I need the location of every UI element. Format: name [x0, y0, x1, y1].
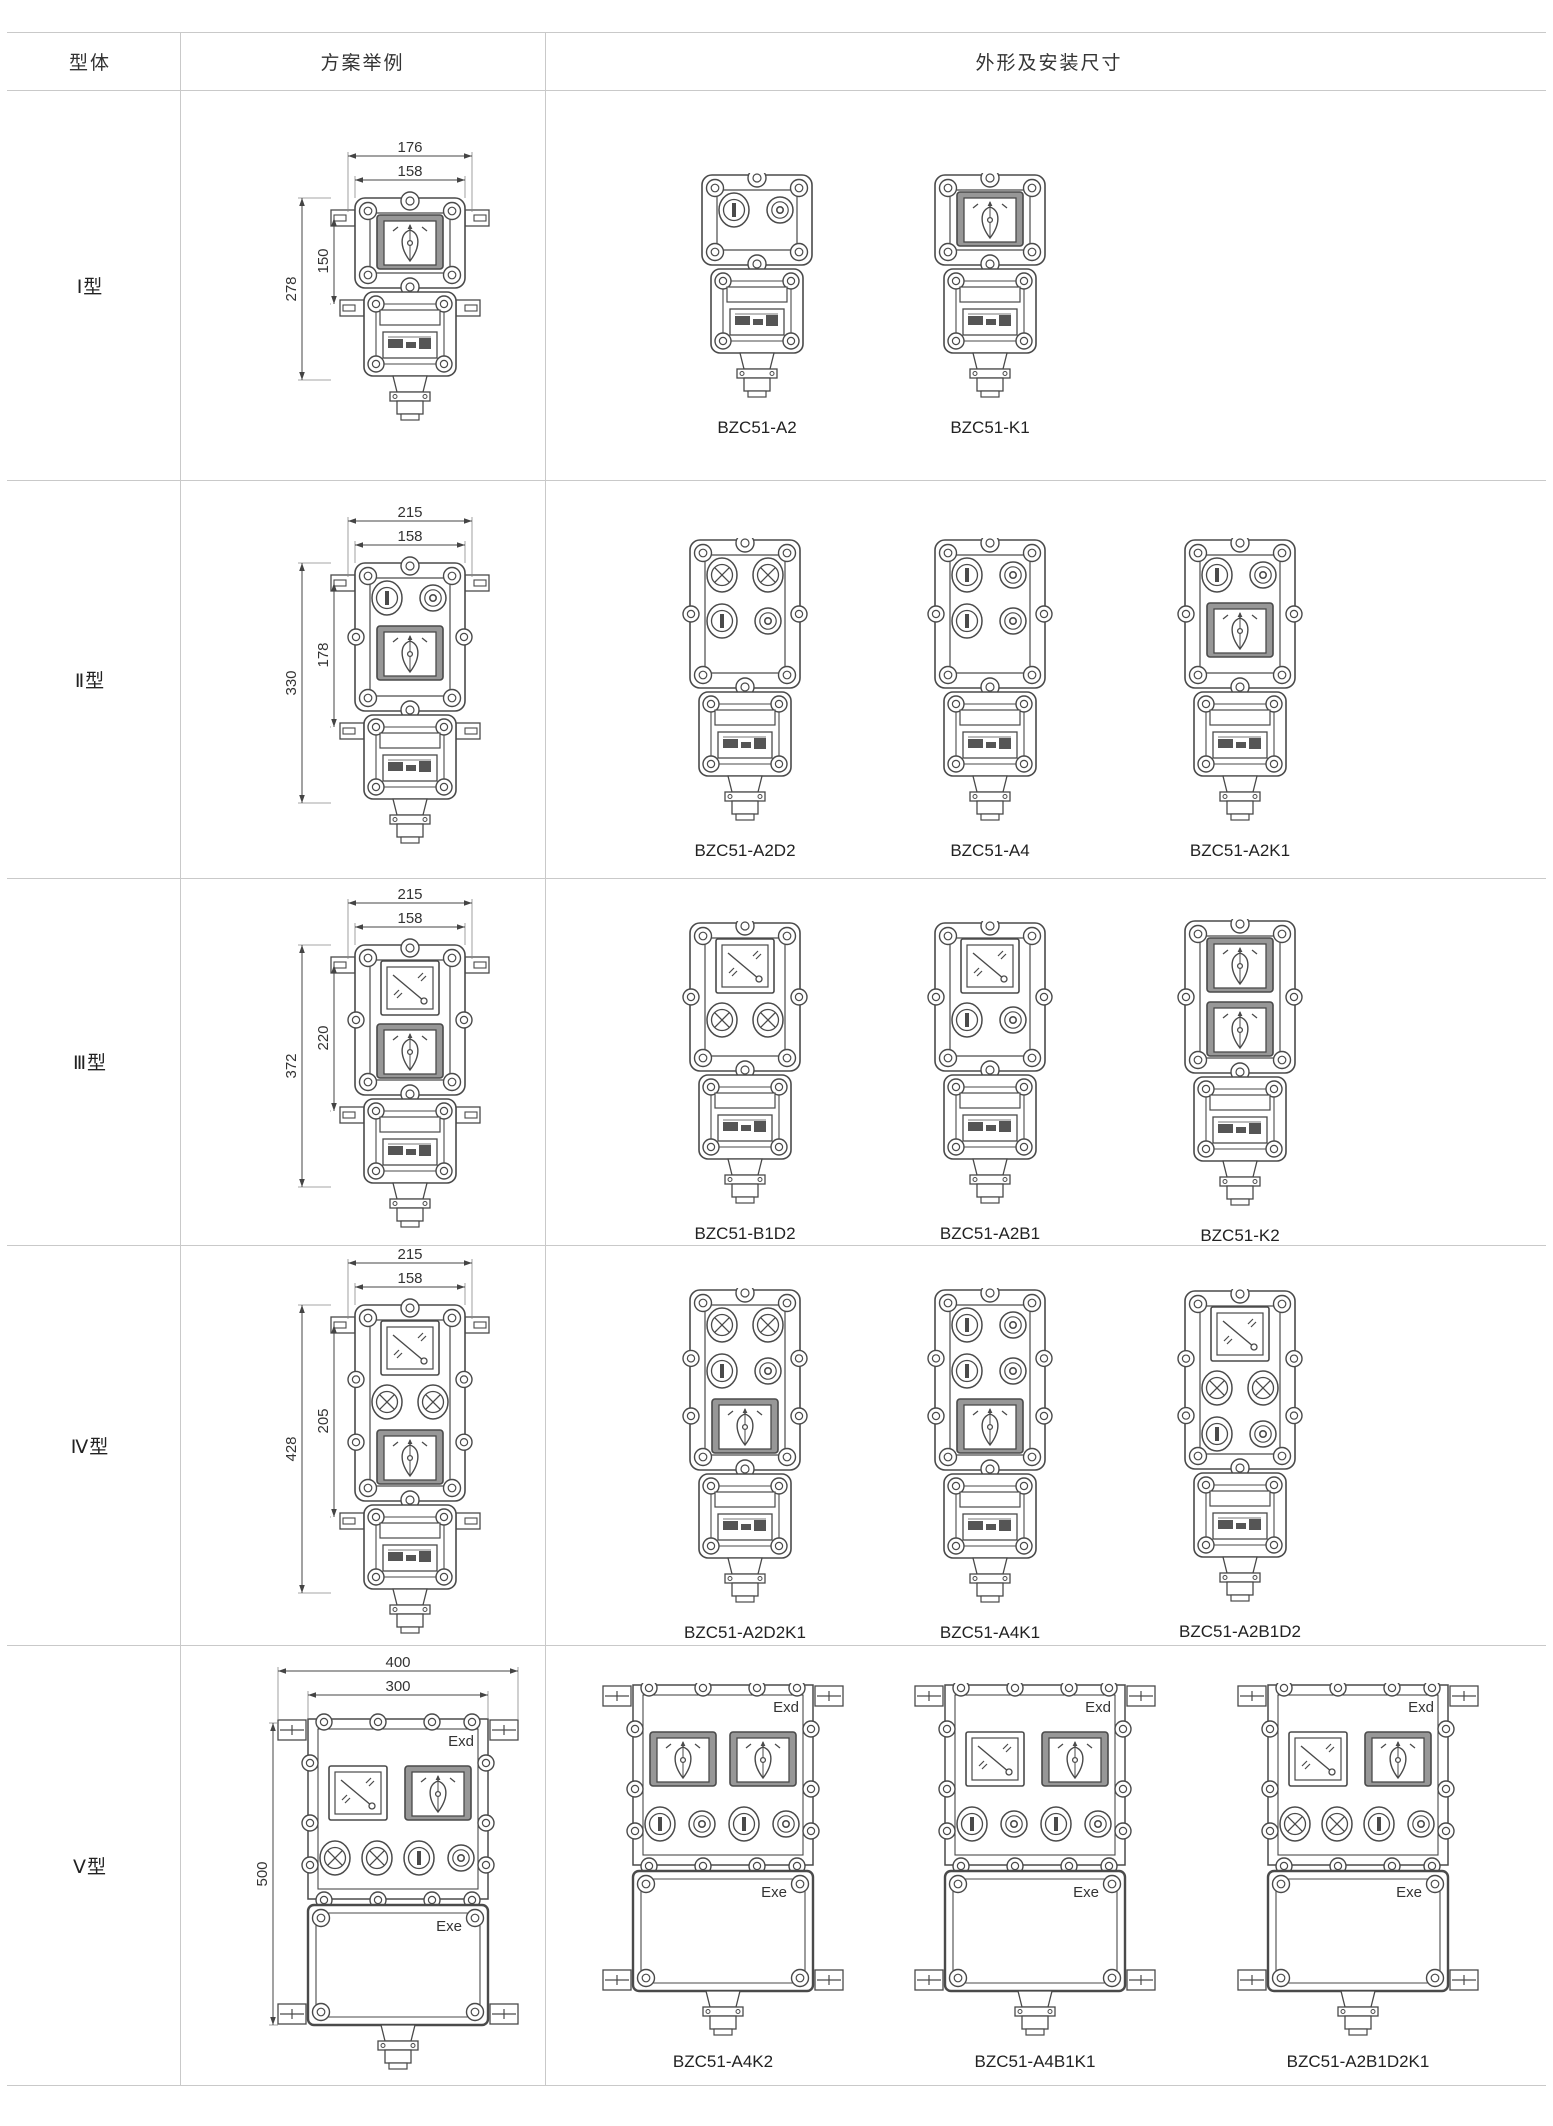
svg-text:220: 220	[315, 1025, 332, 1050]
model-label: BZC51-A2D2K1	[684, 1623, 806, 1643]
svg-text:500: 500	[254, 1861, 271, 1886]
header-scheme-example: 方案举例	[180, 32, 545, 90]
device-drawing	[905, 1288, 1075, 1610]
svg-text:400: 400	[385, 1655, 410, 1671]
model-label: BZC51-A2B1	[940, 1224, 1040, 1244]
model-label: BZC51-A4B1K1	[975, 2052, 1096, 2072]
type-cell-4: Ⅳ型	[0, 1245, 180, 1645]
product-variant: BZC51-K1	[880, 173, 1100, 438]
svg-text:278: 278	[283, 276, 300, 301]
scheme-cell-2: 215158330178	[180, 480, 545, 878]
device-drawing: ExdExe	[1228, 1683, 1488, 2039]
scheme-cell-4: 215158428205	[180, 1245, 545, 1645]
header-outline-dimensions: 外形及安装尺寸	[545, 32, 1553, 90]
model-label: BZC51-A2B1D2	[1179, 1622, 1301, 1642]
device-drawing	[660, 921, 830, 1211]
svg-text:Exd: Exd	[448, 1733, 474, 1750]
svg-text:300: 300	[385, 1678, 410, 1695]
product-variant: BZC51-A2K1	[1130, 538, 1350, 861]
device-drawing: ExdExe	[593, 1683, 853, 2039]
model-label: BZC51-A4K1	[940, 1623, 1040, 1643]
device-drawing	[905, 538, 1075, 828]
model-label: BZC51-A2K1	[1190, 841, 1290, 861]
product-variant: BZC51-A4K1	[880, 1288, 1100, 1643]
device-drawing	[905, 921, 1075, 1211]
device-drawing	[660, 1288, 830, 1610]
type-cell-3: Ⅲ型	[0, 878, 180, 1245]
product-variant: BZC51-A2B1	[880, 921, 1100, 1244]
svg-text:Exe: Exe	[1396, 1884, 1422, 1901]
model-label: BZC51-A4K2	[673, 2052, 773, 2072]
model-label: BZC51-K2	[1200, 1226, 1279, 1246]
catalog-page: 型体 方案举例 外形及安装尺寸 Ⅰ型 Ⅱ型 Ⅲ型 Ⅳ型 Ⅴ型 176158278…	[0, 0, 1553, 2126]
scheme-drawing: 215158330178	[198, 505, 528, 853]
device-drawing	[905, 173, 1075, 405]
svg-text:Exd: Exd	[1408, 1699, 1434, 1716]
svg-text:178: 178	[315, 642, 332, 667]
variants-cell-2: BZC51-A2D2BZC51-A4BZC51-A2K1	[545, 480, 1553, 878]
svg-text:330: 330	[283, 670, 300, 695]
model-label: BZC51-A4	[950, 841, 1029, 861]
device-drawing: ExdExe	[905, 1683, 1165, 2039]
model-label: BZC51-A2D2	[694, 841, 795, 861]
product-variant: ExdExeBZC51-A4K2	[613, 1683, 833, 2072]
header-type: 型体	[0, 32, 180, 90]
svg-text:Exe: Exe	[1073, 1884, 1099, 1901]
svg-text:215: 215	[397, 505, 422, 521]
svg-text:158: 158	[397, 1270, 422, 1287]
product-variant: ExdExeBZC51-A2B1D2K1	[1248, 1683, 1468, 2072]
svg-text:372: 372	[283, 1053, 300, 1078]
model-label: BZC51-A2B1D2K1	[1287, 2052, 1430, 2072]
svg-text:158: 158	[397, 528, 422, 545]
scheme-cell-5: ExdExe400300500	[180, 1645, 545, 2085]
svg-text:215: 215	[397, 887, 422, 903]
model-label: BZC51-K1	[950, 418, 1029, 438]
scheme-drawing: 215158372220	[198, 887, 528, 1237]
device-drawing	[660, 538, 830, 828]
model-label: BZC51-B1D2	[694, 1224, 795, 1244]
device-drawing	[1155, 1289, 1325, 1609]
svg-text:205: 205	[315, 1408, 332, 1433]
type-cell-2: Ⅱ型	[0, 480, 180, 878]
svg-text:158: 158	[397, 163, 422, 180]
scheme-cell-1: 176158278150	[180, 90, 545, 480]
product-variant: BZC51-A2B1D2	[1130, 1289, 1350, 1642]
model-label: BZC51-A2	[717, 418, 796, 438]
scheme-cell-3: 215158372220	[180, 878, 545, 1245]
product-variant: BZC51-A4	[880, 538, 1100, 861]
svg-text:Exe: Exe	[761, 1884, 787, 1901]
product-variant: BZC51-A2	[647, 173, 867, 438]
type-cell-5: Ⅴ型	[0, 1645, 180, 2085]
svg-text:150: 150	[315, 248, 332, 273]
svg-text:Exe: Exe	[436, 1918, 462, 1935]
variants-cell-3: BZC51-B1D2BZC51-A2B1BZC51-K2	[545, 878, 1553, 1245]
variants-cell-4: BZC51-A2D2K1BZC51-A4K1BZC51-A2B1D2	[545, 1245, 1553, 1645]
variants-cell-1: BZC51-A2BZC51-K1	[545, 90, 1553, 480]
table-bottom-border	[7, 2085, 1546, 2086]
product-variant: BZC51-A2D2K1	[635, 1288, 855, 1643]
scheme-drawing: 176158278150	[198, 140, 528, 430]
scheme-drawing: ExdExe400300500	[183, 1655, 543, 2075]
variants-cell-5: ExdExeBZC51-A4K2ExdExeBZC51-A4B1K1ExdExe…	[545, 1645, 1553, 2085]
svg-text:Exd: Exd	[773, 1699, 799, 1716]
product-variant: BZC51-K2	[1130, 919, 1350, 1246]
svg-text:Exd: Exd	[1085, 1699, 1111, 1716]
product-variant: BZC51-B1D2	[635, 921, 855, 1244]
product-variant: BZC51-A2D2	[635, 538, 855, 861]
scheme-drawing: 215158428205	[198, 1247, 528, 1643]
device-drawing	[1155, 919, 1325, 1213]
device-drawing	[1155, 538, 1325, 828]
svg-text:158: 158	[397, 910, 422, 927]
svg-text:428: 428	[283, 1436, 300, 1461]
product-variant: ExdExeBZC51-A4B1K1	[925, 1683, 1145, 2072]
type-cell-1: Ⅰ型	[0, 90, 180, 480]
svg-text:176: 176	[397, 140, 422, 156]
svg-text:215: 215	[397, 1247, 422, 1263]
device-drawing	[672, 173, 842, 405]
